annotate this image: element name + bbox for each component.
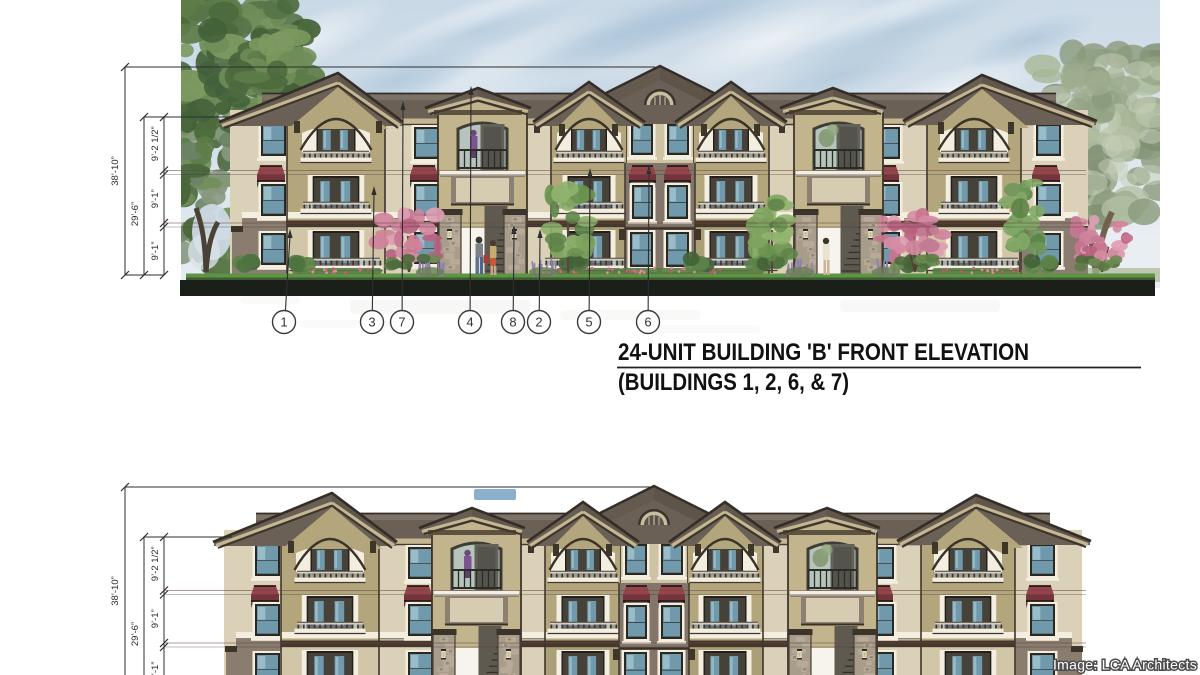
- svg-text:8: 8: [509, 315, 516, 330]
- svg-text:9’-1”: 9’-1”: [150, 241, 161, 260]
- svg-text:1: 1: [280, 315, 287, 330]
- svg-text:9’-1”: 9’-1”: [150, 661, 161, 675]
- svg-text:6: 6: [644, 315, 651, 330]
- svg-text:38’-10”: 38’-10”: [110, 576, 121, 606]
- svg-text:2: 2: [535, 315, 542, 330]
- svg-text:Image: LCA Architects: Image: LCA Architects: [1053, 657, 1197, 673]
- svg-text:3: 3: [368, 315, 375, 330]
- svg-text:7: 7: [398, 315, 405, 330]
- svg-text:(BUILDINGS 1, 2, 6, & 7): (BUILDINGS 1, 2, 6, & 7): [618, 369, 849, 396]
- svg-text:29’-6”: 29’-6”: [130, 622, 141, 646]
- svg-text:9’-1”: 9’-1”: [150, 189, 161, 208]
- svg-text:9’-2 1/2”: 9’-2 1/2”: [150, 546, 161, 581]
- svg-text:4: 4: [466, 315, 473, 330]
- svg-text:24-UNIT BUILDING 'B' FRONT ELE: 24-UNIT BUILDING 'B' FRONT ELEVATION: [618, 339, 1029, 366]
- svg-text:9’-2 1/2”: 9’-2 1/2”: [150, 126, 161, 161]
- svg-text:29’-6”: 29’-6”: [130, 202, 141, 226]
- svg-text:5: 5: [585, 315, 592, 330]
- svg-text:38’-10”: 38’-10”: [110, 156, 121, 186]
- svg-text:9’-1”: 9’-1”: [150, 609, 161, 628]
